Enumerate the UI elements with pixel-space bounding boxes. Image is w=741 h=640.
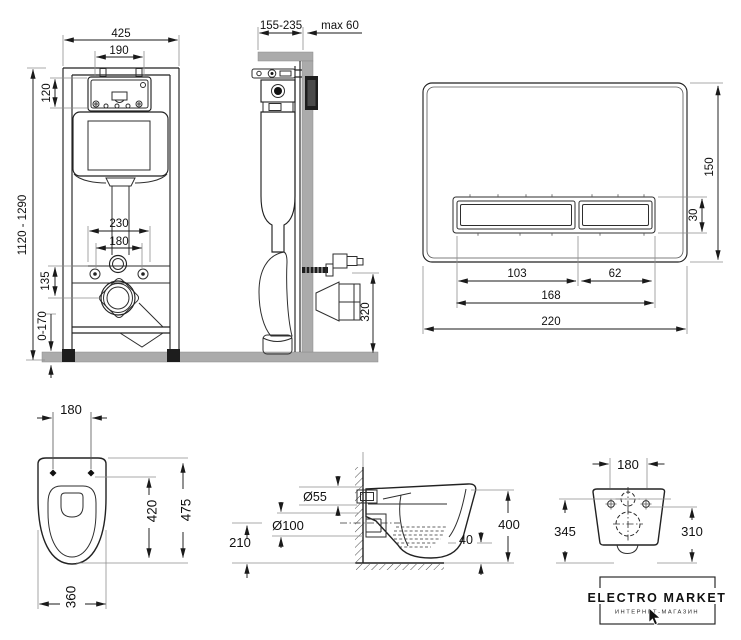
dim-side-outlet-height: 320 — [360, 302, 372, 321]
flush-opening — [61, 493, 83, 517]
flush-plate — [423, 83, 687, 262]
dim-frame-width: 425 — [111, 28, 130, 40]
brand-logo: ELECTRO MARKET ИНТЕРНЕТ-МАГАЗИН — [583, 577, 731, 625]
frame-post — [295, 61, 302, 352]
dim-frame-outlet-offset: 135 — [40, 271, 52, 290]
extension-lines — [258, 27, 379, 273]
dim-side-depth-range: 155-235 — [260, 20, 302, 32]
dim-frame-leg-adjust: 0-170 — [37, 311, 49, 340]
dim-inlet-diameter: Ø55 — [303, 490, 327, 504]
drawing-canvas: 425 190 120 1120 - 1290 230 180 135 0-17… — [0, 0, 741, 640]
dim-frame-height-range: 1120 - 1290 — [17, 195, 29, 256]
frame-side-view: 155-235 max 60 320 — [252, 20, 379, 354]
dim-toilet-height: 400 — [498, 517, 520, 532]
dim-outlet-height: 210 — [229, 535, 251, 550]
dim-rim-gap: 40 — [459, 533, 473, 547]
toilet-top-view: 180 475 420 360 — [37, 402, 194, 609]
extension-lines — [556, 458, 697, 563]
drain-port — [101, 281, 135, 315]
fixing-bolts — [90, 269, 148, 279]
dimension-arrows — [37, 418, 183, 604]
extension-lines — [423, 83, 723, 334]
wall-hatch — [355, 467, 363, 563]
dim-plate-button-right: 62 — [609, 268, 622, 280]
access-fittings — [93, 83, 146, 109]
dim-outlet-diameter: Ø100 — [272, 518, 304, 533]
toilet-back-outline — [593, 489, 665, 545]
dim-back-bolt-spacing: 180 — [617, 457, 639, 472]
toilet-back-view: 180 345 310 — [554, 457, 703, 563]
floor-bar — [42, 352, 378, 362]
dim-plate-button-left: 103 — [507, 268, 526, 280]
frame-foot — [62, 349, 75, 362]
frame-foot — [167, 349, 180, 362]
frame-front-view: 425 190 120 1120 - 1290 230 180 135 0-17… — [17, 28, 180, 378]
technical-drawing: 425 190 120 1120 - 1290 230 180 135 0-17… — [0, 0, 741, 640]
dim-frame-fixing-180: 180 — [109, 236, 128, 248]
dim-frame-fixing-230: 230 — [109, 218, 128, 230]
extension-lines — [38, 458, 188, 609]
outlet-sleeve — [617, 545, 638, 554]
bolt-holes — [606, 499, 652, 510]
shelf — [258, 52, 313, 61]
water-lines — [393, 527, 446, 547]
flush-button-small — [579, 201, 652, 229]
dim-plate-buttons-total: 168 — [541, 290, 560, 302]
flush-plate-view: 150 30 103 62 168 220 — [423, 83, 723, 334]
dim-top-bowl-length: 420 — [145, 500, 160, 523]
dimension-arrows — [565, 464, 692, 562]
logo-title: ELECTRO MARKET — [587, 591, 726, 605]
dim-back-height-right: 310 — [681, 524, 703, 539]
dim-plate-width: 220 — [541, 316, 560, 328]
drain-elbow — [259, 252, 292, 354]
dim-frame-opening-width: 190 — [109, 45, 128, 57]
dim-top-length: 475 — [179, 499, 194, 522]
dim-plate-button-height: 30 — [688, 209, 700, 222]
button-frame — [453, 197, 655, 233]
flush-button-large — [457, 201, 575, 229]
seat-inner — [48, 486, 96, 557]
toilet-side-view: Ø55 Ø100 210 400 40 — [229, 452, 520, 578]
dim-plate-height: 150 — [704, 157, 716, 176]
dim-side-wall-max: max 60 — [321, 20, 359, 32]
logo-subtitle: ИНТЕРНЕТ-МАГАЗИН — [615, 610, 699, 616]
cistern — [73, 112, 168, 176]
dim-top-bolt-spacing: 180 — [60, 402, 82, 417]
cistern-side — [261, 80, 295, 252]
bolt-mark — [88, 470, 95, 477]
dim-frame-opening-height: 120 — [41, 83, 53, 102]
dim-top-width: 360 — [64, 586, 79, 609]
mounting-bracket — [252, 69, 295, 78]
dim-back-height-left: 345 — [554, 524, 576, 539]
floor-hatch — [356, 564, 444, 570]
bolt-mark — [50, 470, 57, 477]
